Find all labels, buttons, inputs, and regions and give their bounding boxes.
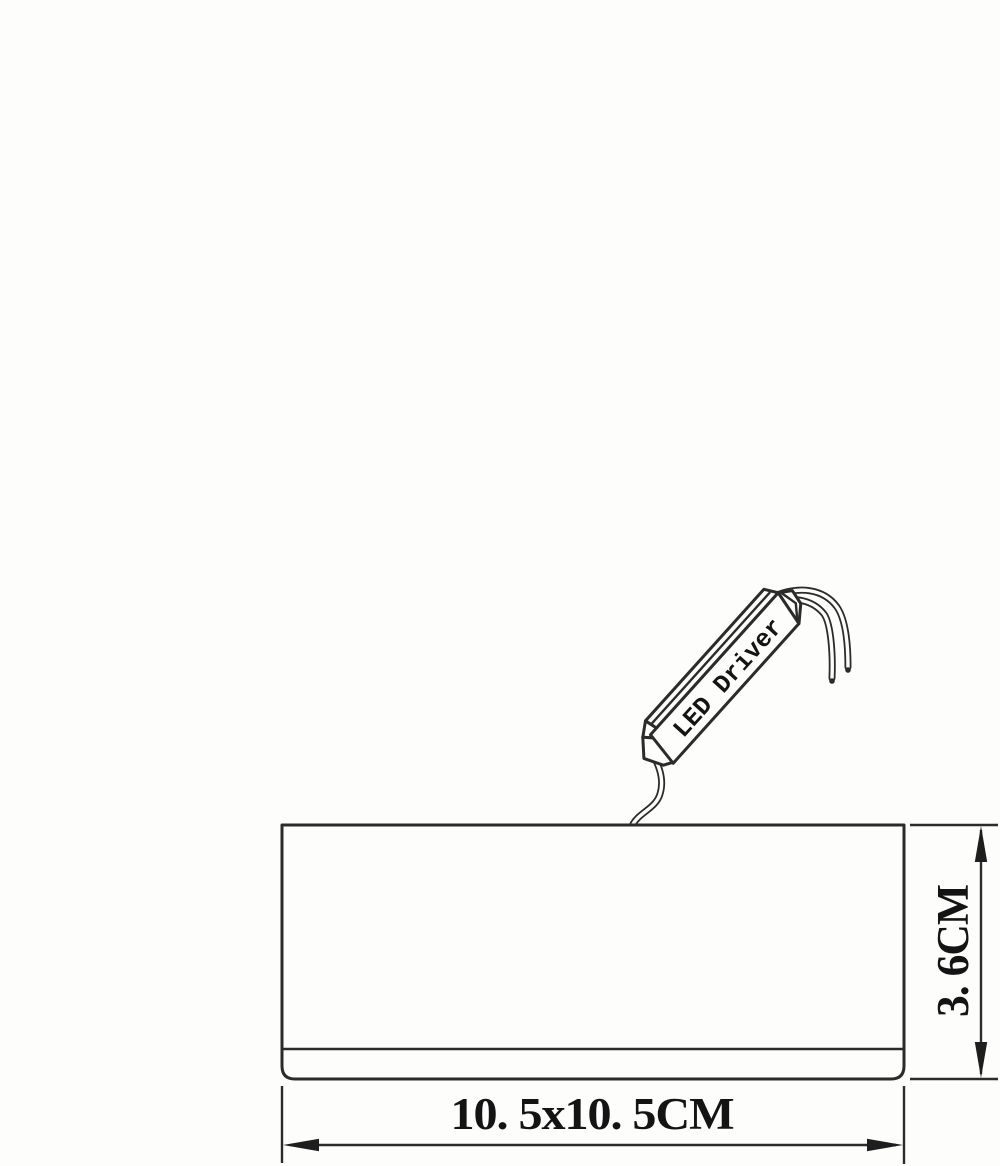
arrow-down-icon [975, 1042, 987, 1078]
height-dimension: 3. 6CM [910, 825, 998, 1079]
width-dimension-label: 10. 5x10. 5CM [451, 1089, 735, 1139]
drawing-canvas: LED Driver 3. 6CM 10. 5x10. 5CM [0, 0, 1000, 1166]
width-dimension: 10. 5x10. 5CM [282, 1086, 904, 1164]
technical-drawing: LED Driver 3. 6CM 10. 5x10. 5CM [0, 0, 1000, 1166]
arrow-left-icon [283, 1139, 319, 1151]
wire-tip-dot [845, 667, 851, 673]
led-driver: LED Driver [626, 576, 812, 775]
fixture-body-outline [282, 825, 904, 1079]
arrow-right-icon [867, 1139, 903, 1151]
arrow-up-icon [975, 826, 987, 862]
fixture-body [282, 825, 904, 1079]
wire-tip-dot [829, 678, 835, 684]
height-dimension-label: 3. 6CM [928, 885, 978, 1017]
